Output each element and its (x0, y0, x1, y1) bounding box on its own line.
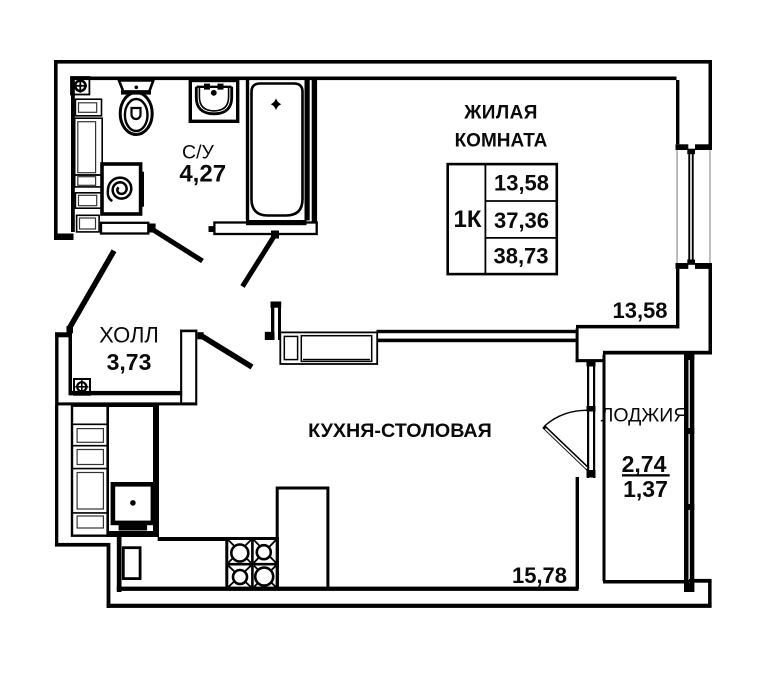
svg-text:4,27: 4,27 (179, 161, 226, 188)
svg-text:15,78: 15,78 (512, 563, 567, 588)
svg-text:2,74: 2,74 (622, 451, 667, 477)
svg-text:КОМНАТА: КОМНАТА (455, 131, 548, 152)
svg-text:ЖИЛАЯ: ЖИЛАЯ (463, 103, 538, 124)
svg-text:1К: 1К (454, 206, 482, 233)
svg-text:13,58: 13,58 (494, 171, 549, 196)
svg-text:ЛОДЖИЯ: ЛОДЖИЯ (601, 405, 688, 427)
svg-text:38,73: 38,73 (493, 243, 548, 268)
svg-text:КУХНЯ-СТОЛОВАЯ: КУХНЯ-СТОЛОВАЯ (308, 420, 492, 442)
svg-text:13,58: 13,58 (612, 298, 667, 323)
svg-text:37,36: 37,36 (494, 208, 549, 233)
svg-text:ХОЛЛ: ХОЛЛ (99, 322, 159, 347)
svg-text:1,37: 1,37 (623, 476, 668, 502)
svg-text:3,73: 3,73 (107, 349, 152, 375)
